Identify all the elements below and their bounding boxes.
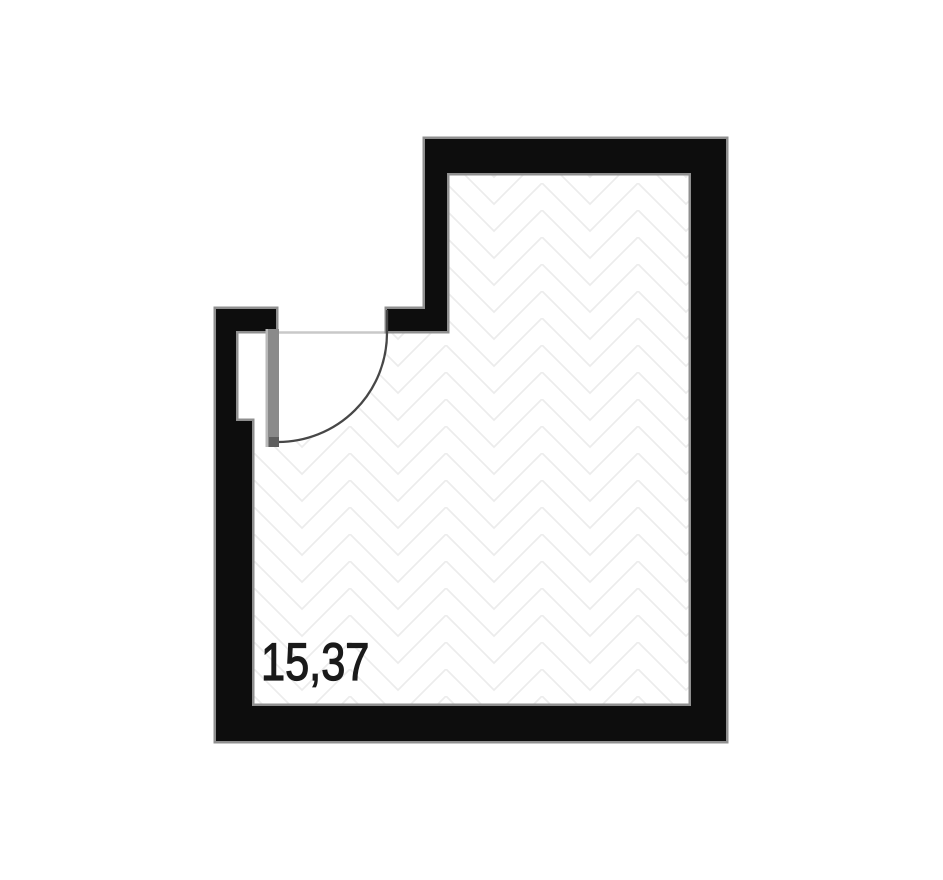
svg-text:15,37: 15,37 — [261, 633, 369, 692]
